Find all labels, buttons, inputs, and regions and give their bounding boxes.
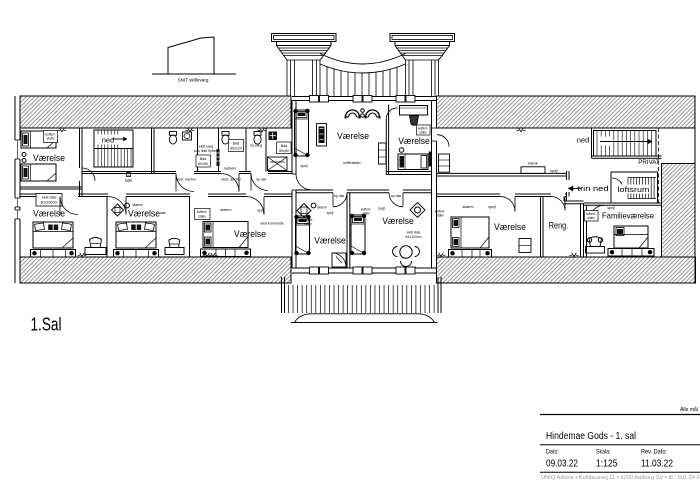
svg-text:Værelse: Værelse <box>128 208 160 219</box>
svg-text:Bad: Bad <box>233 142 239 146</box>
svg-text:Bad: Bad <box>281 144 287 148</box>
svg-text:Bad: Bad <box>200 157 206 161</box>
svg-text:skærm: skærm <box>462 205 473 209</box>
svg-text:Værelse: Værelse <box>337 130 369 141</box>
svg-text:radiator: radiator <box>224 167 237 171</box>
svg-text:11.03.22: 11.03.22 <box>641 459 673 470</box>
svg-text:stativ: stativ <box>436 214 444 218</box>
svg-text:stativ: stativ <box>587 216 595 220</box>
svg-text:kuffert-: kuffert- <box>197 210 207 214</box>
svg-text:trin ned: trin ned <box>578 184 609 193</box>
svg-text:80x50: 80x50 <box>279 149 289 153</box>
svg-text:spejl: spejl <box>301 164 308 168</box>
svg-text:skærm: skærm <box>132 203 143 207</box>
svg-text:Værelse: Værelse <box>234 228 266 239</box>
svg-text:skunkrum: skunkrum <box>270 160 285 164</box>
svg-text:stativ: stativ <box>198 215 206 219</box>
svg-text:1:125: 1:125 <box>596 459 618 470</box>
svg-text:spejl: spejl <box>327 211 334 215</box>
svg-text:Værelse: Værelse <box>314 236 346 246</box>
svg-text:spejl: spejl <box>378 207 385 211</box>
svg-text:kuffertstativ: kuffertstativ <box>343 161 361 165</box>
svg-text:ny dør: ny dør <box>334 194 345 198</box>
svg-text:ekst. dørhul: ekst. dørhul <box>176 177 195 181</box>
svg-text:ekst disk: ekst disk <box>407 231 421 235</box>
svg-text:ned: ned <box>577 136 590 145</box>
svg-text:Skala:: Skala: <box>596 450 611 456</box>
svg-text:Værelse: Værelse <box>382 216 414 226</box>
svg-text:sale: sale <box>160 211 166 215</box>
svg-text:spejl: spejl <box>488 205 496 209</box>
svg-text:Værelse: Værelse <box>494 221 526 232</box>
svg-text:Familieværelse: Familieværelse <box>602 211 654 220</box>
svg-text:09.03.22: 09.03.22 <box>546 459 578 470</box>
svg-text:ekst kommode: ekst kommode <box>260 222 283 226</box>
svg-text:ekst disk: ekst disk <box>42 196 57 200</box>
svg-text:skærm: skærm <box>221 208 232 212</box>
svg-text:80x160cm: 80x160cm <box>40 201 57 205</box>
svg-text:80x120: 80x120 <box>230 147 242 151</box>
svg-text:SNIT skillevæg: SNIT skillevæg <box>178 78 209 83</box>
svg-text:Alle mål: Alle mål <box>680 406 698 413</box>
svg-text:Hindemae Gods - 1. sal: Hindemae Gods - 1. sal <box>546 431 636 442</box>
svg-text:1.Sal: 1.Sal <box>31 314 62 335</box>
svg-text:Værelse: Værelse <box>398 136 430 146</box>
svg-text:stativ: stativ <box>419 131 427 135</box>
svg-text:skærm: skærm <box>317 206 327 210</box>
svg-text:spejl: spejl <box>607 206 614 210</box>
svg-text:loftsrum: loftsrum <box>618 185 650 194</box>
svg-text:ned: ned <box>102 136 115 145</box>
svg-text:ny væg: ny væg <box>250 144 262 148</box>
svg-text:kan ikke flyttes: kan ikke flyttes <box>194 149 218 153</box>
svg-text:stativ: stativ <box>47 137 55 141</box>
svg-text:UNIQ Advice • Kultilausvej 11: UNIQ Advice • Kultilausvej 11 • 9200 Aal… <box>541 475 700 481</box>
svg-text:62x122cm: 62x122cm <box>405 235 421 239</box>
svg-text:PRIVAT: PRIVAT <box>638 159 660 166</box>
svg-text:Værelse: Værelse <box>33 152 65 163</box>
svg-text:ekst. dørhul: ekst. dørhul <box>221 177 240 181</box>
svg-text:ekst væg: ekst væg <box>199 145 214 149</box>
svg-text:bænk: bænk <box>528 161 538 165</box>
svg-text:Rev. Dato:: Rev. Dato: <box>641 450 667 456</box>
svg-text:80x50: 80x50 <box>198 162 208 166</box>
svg-text:Reng.: Reng. <box>549 220 569 231</box>
svg-text:Dato:: Dato: <box>546 450 559 456</box>
svg-text:ny dør: ny dør <box>391 194 402 198</box>
svg-text:ny dør: ny dør <box>256 177 267 181</box>
svg-text:spejl: spejl <box>550 169 558 173</box>
svg-text:søjle: søjle <box>125 179 132 183</box>
